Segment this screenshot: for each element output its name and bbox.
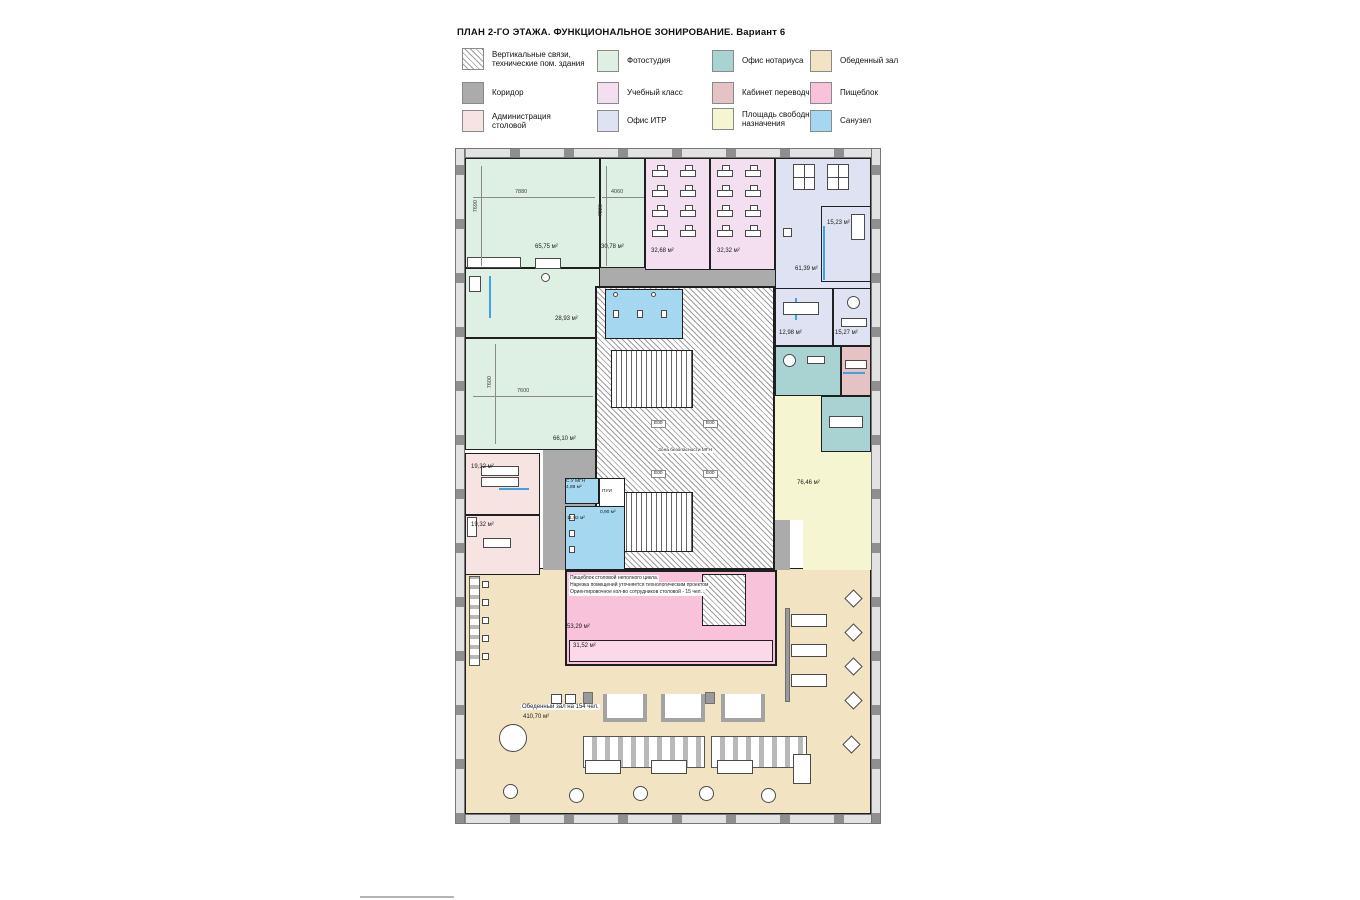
booth-seating — [721, 694, 765, 722]
printer — [783, 228, 792, 237]
dimension-label: 7600 — [487, 376, 493, 388]
dining-table — [585, 760, 621, 774]
long-table — [791, 614, 827, 627]
legend-label: Пищеблок — [840, 88, 878, 98]
dimension-label: 7880 — [515, 189, 527, 195]
banquette — [785, 608, 790, 702]
room-notary-1 — [775, 346, 841, 396]
column — [583, 692, 593, 704]
wall-right — [871, 148, 881, 824]
round-table — [761, 788, 776, 803]
classroom-desk — [680, 210, 696, 217]
workstation-cluster — [793, 164, 815, 190]
legend-item: Офис нотариуса — [712, 50, 804, 72]
desk — [841, 318, 867, 327]
legend-swatch-dining — [810, 50, 832, 72]
armchair — [551, 694, 562, 704]
room-translator — [841, 346, 871, 396]
area-label: 53,29 м² — [567, 624, 590, 631]
floor-plan: 7880 7690 4060 7220 7600 7600 65,75 м² 3… — [455, 148, 905, 828]
legend-item: Обеденный зал — [810, 50, 898, 72]
cafe-table — [482, 581, 489, 588]
wall-left — [455, 148, 465, 824]
kitchen-note-line1: Пищеблок столовой неполного цикла. — [569, 575, 659, 582]
classroom-desk — [717, 170, 733, 177]
booth-seating — [603, 694, 647, 722]
legend-item: Учебный класс — [597, 82, 683, 104]
armchair — [565, 694, 576, 704]
mgn-safety-zone-text: Зона безопасности МГН — [657, 448, 713, 453]
legend-swatch-admin — [462, 110, 484, 132]
legend-label: Администрация столовой — [492, 112, 587, 131]
legend-item: Вертикальные связи, технические пом. зда… — [462, 48, 585, 70]
dimension-line — [495, 344, 496, 444]
legend-label: Учебный класс — [627, 88, 683, 98]
toilet — [661, 310, 667, 318]
classroom-desk — [745, 190, 761, 197]
column — [705, 692, 715, 704]
dimension-line — [606, 166, 607, 266]
dining-hall-title: Обеденный зал на 154 чел. — [521, 704, 600, 710]
workstation-cluster — [827, 164, 849, 190]
sofa — [535, 258, 561, 269]
sink — [613, 292, 618, 297]
legend-label: Вертикальные связи, технические пом. зда… — [492, 50, 585, 69]
toilet — [637, 310, 643, 318]
room-photostudio-4 — [465, 338, 600, 450]
mgn-safety-zone-label: Зона безопасности МГН — [605, 448, 765, 454]
area-label: 15,23 м² — [827, 220, 850, 227]
desk — [845, 360, 867, 369]
area-label: 65,75 м² — [535, 244, 558, 251]
area-label: 30,78 м² — [601, 244, 624, 251]
dining-table — [717, 760, 753, 774]
plumbing-line — [499, 488, 529, 490]
stool — [541, 273, 550, 282]
plumbing-line — [823, 226, 825, 280]
wall-top — [455, 148, 881, 158]
area-label: 11,92 м² — [567, 516, 585, 522]
legend-swatch-itr — [597, 110, 619, 132]
banquette — [469, 576, 480, 666]
dimension-label: 7220 — [598, 204, 604, 216]
kitchen-note: Пищеблок столовой неполного цикла. Нарез… — [569, 575, 709, 596]
dimension-line — [473, 197, 595, 198]
room-photostudio-3 — [465, 268, 600, 338]
cafe-table — [482, 617, 489, 624]
legend-swatch-photostudio — [597, 50, 619, 72]
classroom-desk — [680, 230, 696, 237]
classroom-desk — [717, 230, 733, 237]
floor-plan-sheet: ПЛАН 2-ГО ЭТАЖА. ФУНКЦИОНАЛЬНОЕ ЗОНИРОВА… — [0, 0, 1360, 900]
area-label: 28,93 м² — [555, 316, 578, 323]
legend-swatch-kitchen — [810, 82, 832, 104]
legend-item: Офис ИТР — [597, 110, 666, 132]
area-label: 32,32 м² — [717, 248, 740, 255]
conference-table — [783, 302, 819, 315]
area-label: 31,52 м² — [573, 643, 596, 650]
page-title: ПЛАН 2-ГО ЭТАЖА. ФУНКЦИОНАЛЬНОЕ ЗОНИРОВА… — [457, 27, 785, 38]
classroom-desk — [652, 230, 668, 237]
area-label: 32,68 м² — [651, 248, 674, 255]
classroom-desk — [745, 210, 761, 217]
legend-item: Администрация столовой — [462, 110, 587, 132]
legend-swatch-notary — [712, 50, 734, 72]
legend-swatch-free-zone — [712, 108, 734, 130]
classroom-desk — [652, 210, 668, 217]
round-table — [783, 354, 796, 367]
legend-swatch-corridor — [462, 82, 484, 104]
sofa — [793, 754, 811, 784]
cafe-table — [482, 599, 489, 606]
area-label: 12,98 м² — [779, 330, 802, 337]
plumbing-line — [843, 372, 865, 374]
classroom-desk — [745, 230, 761, 237]
dimension-line — [602, 197, 644, 198]
desk — [829, 416, 863, 428]
room-itr-sub-2 — [775, 288, 833, 346]
dimension-line — [473, 396, 593, 397]
desk — [469, 276, 481, 292]
kitchen-note-line2: Нарезка помещений уточняется технологиче… — [569, 582, 709, 589]
elevator-label: Е00 — [703, 420, 718, 428]
round-table — [699, 786, 714, 801]
dimension-label: 7690 — [473, 200, 479, 212]
toilet — [613, 310, 619, 318]
dimension-line — [481, 166, 482, 266]
area-label: 19,32 м² — [471, 464, 494, 471]
room-kitchen-inner — [569, 640, 773, 662]
cafe-table — [482, 653, 489, 660]
sink — [651, 292, 656, 297]
classroom-desk — [680, 170, 696, 177]
room-photostudio-main — [465, 158, 600, 268]
legend-swatch-vertical-links — [462, 48, 484, 70]
dimension-label: 7600 — [517, 388, 529, 394]
round-table — [569, 788, 584, 803]
legend-label: Санузел — [840, 116, 871, 126]
cafe-table — [482, 635, 489, 642]
classroom-desk — [652, 190, 668, 197]
legend-label: Фотостудия — [627, 56, 670, 66]
legend-item: Санузел — [810, 110, 871, 132]
table — [481, 477, 519, 487]
desk — [483, 538, 511, 548]
toilet — [569, 546, 575, 553]
legend-label: Обеденный зал — [840, 56, 898, 66]
long-table — [791, 644, 827, 657]
round-table-large — [499, 724, 527, 752]
classroom-desk — [680, 190, 696, 197]
couch-bed — [851, 214, 865, 240]
legend-label: Офис нотариуса — [742, 56, 804, 66]
classroom-desk — [717, 190, 733, 197]
area-label: 61,39 м² — [795, 266, 818, 273]
legend-label: Коридор — [492, 88, 524, 98]
legend-swatch-classroom — [597, 82, 619, 104]
area-label: 76,46 м² — [797, 480, 820, 487]
wall-bottom — [455, 814, 881, 824]
legend-swatch-translator — [712, 82, 734, 104]
classroom-desk — [652, 170, 668, 177]
stairs-upper — [611, 350, 693, 408]
classroom-desk — [717, 210, 733, 217]
classroom-desk — [745, 170, 761, 177]
legend-label: Офис ИТР — [627, 116, 666, 126]
elevator-label: Е00 — [703, 470, 718, 478]
elevator-label: Е00 — [651, 470, 666, 478]
legend-item: Фотостудия — [597, 50, 670, 72]
area-label: С.У МГН — [566, 479, 585, 485]
booth-seating — [661, 694, 705, 722]
area-label: 19,32 м² — [471, 522, 494, 529]
kitchen-note-line3: Ориентировочное кол-во сотрудников столо… — [569, 589, 703, 596]
toilet — [569, 530, 575, 537]
dimension-label: 4060 — [611, 189, 623, 195]
dining-hall-area: 410,70 м² — [523, 714, 549, 721]
legend-swatch-sanitary — [810, 110, 832, 132]
round-table — [633, 786, 648, 801]
counter — [467, 257, 521, 268]
round-table — [503, 784, 518, 799]
area-label: 15,27 м² — [835, 330, 858, 337]
area-label: 4,88 м² — [566, 485, 582, 491]
area-label: 66,10 м² — [553, 436, 576, 443]
elevator-label: Е00 — [651, 420, 666, 428]
area-label: ПУИ — [602, 489, 612, 495]
legend-item: Коридор — [462, 82, 524, 104]
round-table — [847, 296, 860, 309]
legend-item: Пищеблок — [810, 82, 878, 104]
area-label: 0,90 м² — [600, 510, 616, 516]
plumbing-line — [489, 276, 491, 318]
legend-item: Кабинет переводчика — [712, 82, 822, 104]
dining-hall-label: Обеденный зал на 154 чел. — [521, 704, 600, 711]
dining-table — [651, 760, 687, 774]
desk — [807, 356, 825, 364]
long-table — [791, 674, 827, 687]
bottom-divider-bar — [360, 896, 454, 898]
